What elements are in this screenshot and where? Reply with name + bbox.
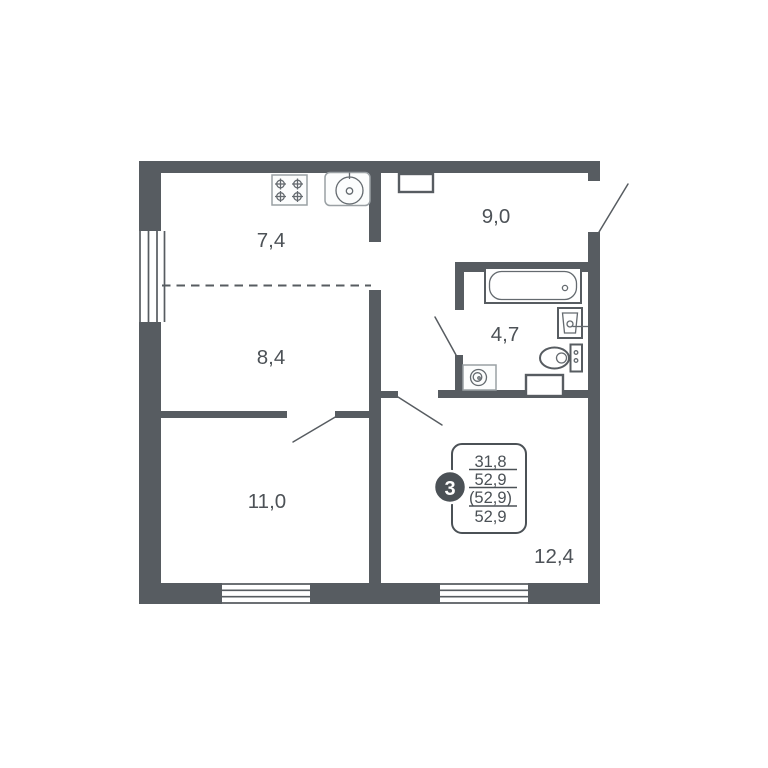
wall-entrance-jamb bbox=[588, 173, 600, 181]
window-left bbox=[139, 231, 165, 322]
rooms-count-number: 3 bbox=[444, 478, 455, 500]
vent-shaft-icon bbox=[399, 174, 433, 192]
bathtub-icon bbox=[485, 268, 581, 303]
wall-hallway-stub bbox=[381, 391, 398, 398]
window-mainroom-glass bbox=[440, 583, 528, 604]
room-label-bedroom: 11,0 bbox=[248, 490, 286, 513]
bathroom-door-leaf bbox=[435, 317, 456, 355]
window-bottom-bedroom bbox=[222, 583, 310, 604]
washing-machine-icon bbox=[463, 365, 496, 390]
wall-bathroom-left-upper bbox=[455, 272, 464, 310]
room-label-kitchen: 7,4 bbox=[257, 229, 286, 252]
wall-right bbox=[588, 232, 600, 604]
window-bottom-mainroom bbox=[440, 583, 528, 604]
entrance-door-leaf bbox=[599, 184, 628, 232]
area-stamp: 31,8 52,9 (52,9) 52,9 3 bbox=[434, 444, 526, 533]
wall-center-lower bbox=[369, 290, 381, 583]
stamp-total-area: 52,9 bbox=[474, 508, 506, 526]
stamp-living-area: 31,8 bbox=[474, 453, 506, 471]
stove-body bbox=[272, 175, 307, 205]
mainroom-door-leaf bbox=[398, 397, 442, 425]
wall-bottom bbox=[139, 583, 600, 604]
wall-bathroom-left-lower bbox=[455, 355, 463, 391]
room-label-main-room: 12,4 bbox=[534, 545, 574, 568]
toilet-tank bbox=[571, 345, 583, 372]
stamp-area-2: 52,9 bbox=[474, 471, 506, 489]
room-label-hallway: 9,0 bbox=[482, 205, 511, 228]
room-label-bathroom: 4,7 bbox=[491, 323, 520, 346]
wall-bathroom-bottom bbox=[438, 390, 590, 398]
wall-bedroom-right bbox=[335, 411, 369, 418]
wall-bedroom-left bbox=[161, 411, 287, 418]
vent-shaft-icon bbox=[526, 375, 563, 396]
window-left-glass bbox=[139, 231, 165, 322]
toilet-bowl bbox=[540, 348, 569, 369]
stamp-area-3: (52,9) bbox=[469, 489, 512, 507]
stove-icon bbox=[272, 175, 307, 205]
floor-plan: 31,8 52,9 (52,9) 52,9 3 7,4 9,0 8,4 4,7 … bbox=[0, 0, 768, 768]
bedroom-door-leaf bbox=[293, 416, 337, 442]
window-bedroom-glass bbox=[222, 583, 310, 604]
kitchen-sink-icon bbox=[325, 173, 370, 206]
toilet-icon bbox=[540, 345, 582, 372]
floor-plan-drawing: 31,8 52,9 (52,9) 52,9 3 7,4 9,0 8,4 4,7 … bbox=[0, 0, 768, 768]
wall-left-upper bbox=[139, 161, 161, 231]
washbasin-icon bbox=[558, 308, 588, 338]
wall-center-upper bbox=[369, 173, 381, 242]
wall-top bbox=[139, 161, 600, 173]
room-label-living-zone: 8,4 bbox=[257, 346, 286, 369]
wall-left-lower bbox=[139, 322, 161, 604]
